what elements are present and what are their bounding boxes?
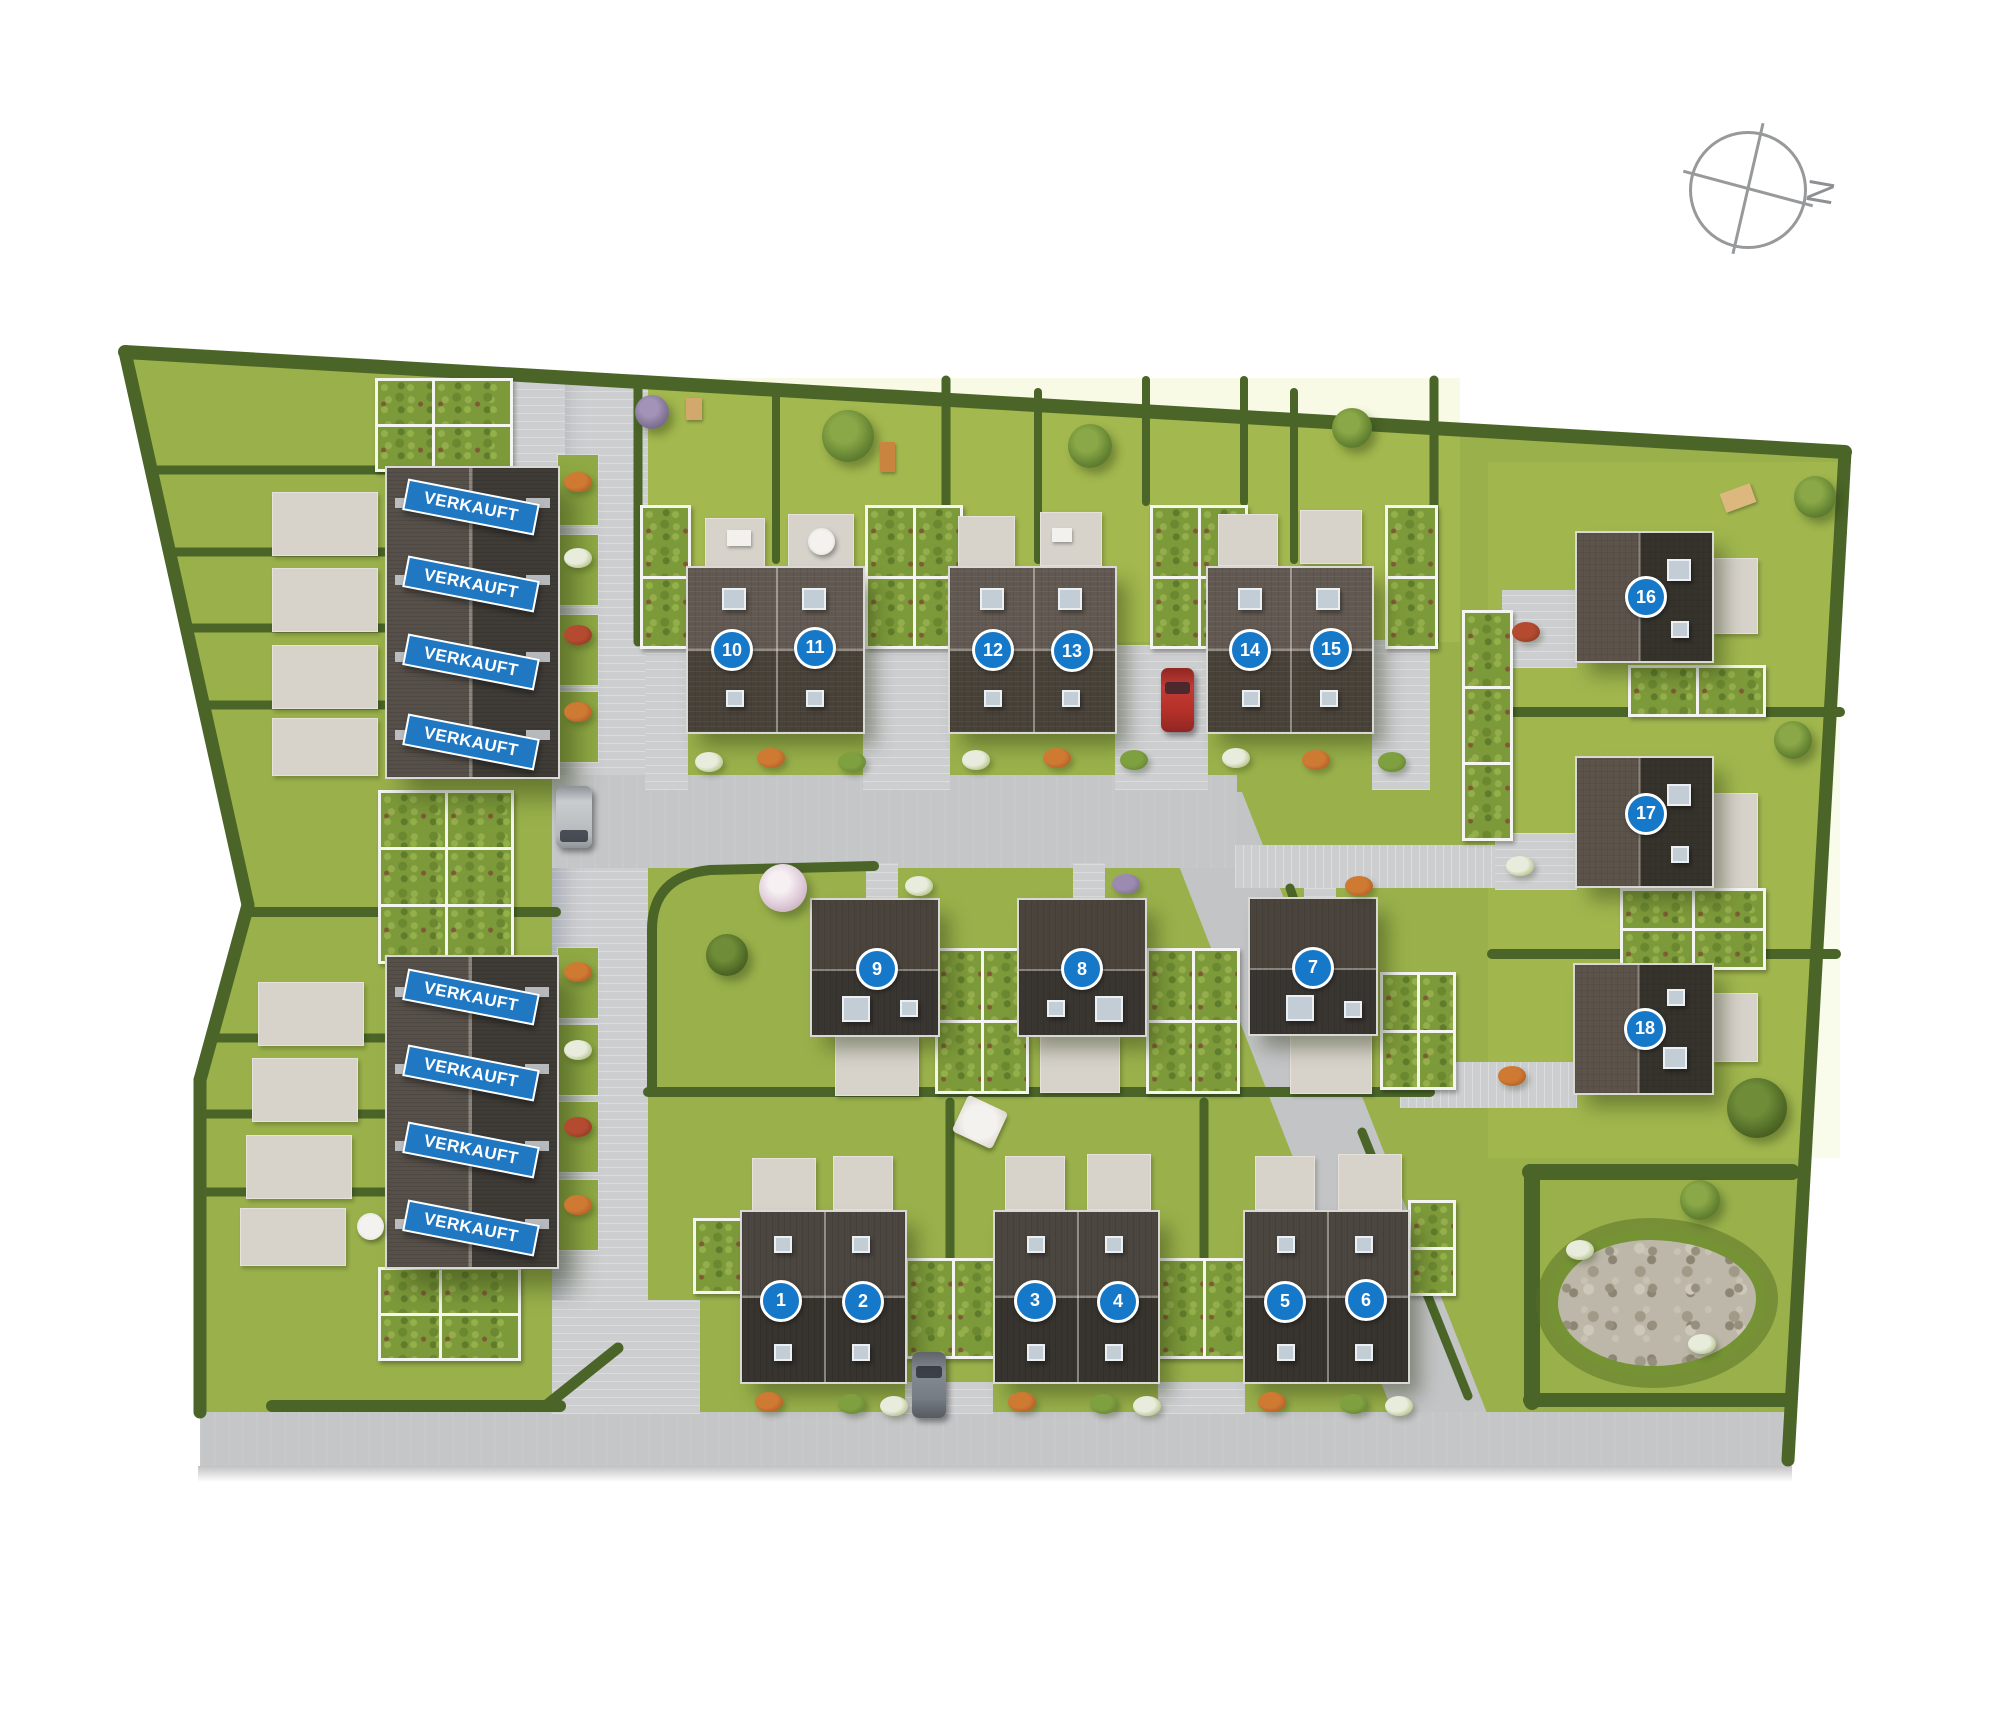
- skylight: [722, 588, 746, 610]
- hedge-corner: [548, 1348, 618, 1404]
- skylight: [1238, 588, 1262, 610]
- patio: [240, 1208, 346, 1266]
- tree: [706, 934, 748, 976]
- skylight: [852, 1236, 870, 1253]
- garden-table: [1052, 528, 1072, 542]
- plot-marker-12[interactable]: 12: [972, 629, 1014, 671]
- skylight: [1277, 1344, 1295, 1361]
- compass: N: [1689, 131, 1807, 249]
- flower-bush: [1340, 1394, 1368, 1414]
- patio: [258, 982, 364, 1046]
- garden-bed: [1380, 972, 1456, 1090]
- skylight: [1027, 1344, 1045, 1361]
- skylight: [1047, 1000, 1065, 1017]
- garden-bed: [1462, 610, 1513, 841]
- tree: [1068, 424, 1112, 468]
- flower-bush: [1506, 856, 1534, 876]
- plot-marker-1[interactable]: 1: [760, 1280, 802, 1322]
- flower-bush: [1512, 622, 1540, 642]
- garden-bed: [865, 505, 963, 649]
- patio: [1005, 1156, 1065, 1210]
- garden-bed: [378, 1267, 521, 1361]
- skylight: [1105, 1236, 1123, 1253]
- flower-bush: [838, 1394, 866, 1414]
- flower-bush: [564, 962, 592, 982]
- flower-bush: [1258, 1392, 1286, 1412]
- patio: [1338, 1154, 1402, 1210]
- patio: [1290, 1034, 1372, 1094]
- plot-marker-4[interactable]: 4: [1097, 1281, 1139, 1323]
- flower-bush: [1120, 750, 1148, 770]
- skylight: [1058, 588, 1082, 610]
- skylight: [900, 1000, 918, 1017]
- skylight: [852, 1344, 870, 1361]
- garden-bed: [378, 790, 514, 964]
- flower-bush: [1385, 1396, 1413, 1416]
- plot-marker-14[interactable]: 14: [1229, 629, 1271, 671]
- plot-marker-13[interactable]: 13: [1051, 630, 1093, 672]
- parasol: [357, 1213, 384, 1240]
- patio: [752, 1158, 816, 1212]
- plot-marker-8[interactable]: 8: [1061, 948, 1103, 990]
- skylight: [1355, 1236, 1373, 1253]
- skylight: [1344, 1001, 1362, 1018]
- patio: [1087, 1154, 1151, 1210]
- bench: [880, 442, 895, 472]
- garden-bed: [905, 1258, 1001, 1359]
- tree: [1680, 1180, 1720, 1220]
- flower-bush: [880, 1396, 908, 1416]
- skylight: [1671, 621, 1689, 638]
- plot-marker-5[interactable]: 5: [1264, 1281, 1306, 1323]
- flower-bush: [755, 1392, 783, 1412]
- skylight: [806, 690, 824, 707]
- plot-marker-6[interactable]: 6: [1345, 1279, 1387, 1321]
- red-car: [1161, 668, 1194, 732]
- patio: [958, 516, 1015, 568]
- hedge-boundary-west: [200, 905, 248, 1080]
- plot-marker-15[interactable]: 15: [1310, 628, 1352, 670]
- skylight: [1027, 1236, 1045, 1253]
- parasol: [808, 528, 835, 555]
- skylight: [1105, 1344, 1123, 1361]
- garden-bed: [1620, 888, 1766, 970]
- site-edge-shadow: [198, 1466, 1792, 1482]
- flower-bush: [564, 1040, 592, 1060]
- skylight: [1242, 690, 1260, 707]
- skylight: [1320, 690, 1338, 707]
- flower-bush: [962, 750, 990, 770]
- patio: [272, 492, 378, 556]
- tree: [1774, 721, 1812, 759]
- flower-bush: [1566, 1240, 1594, 1260]
- bench: [686, 398, 702, 420]
- plot-marker-10[interactable]: 10: [711, 629, 753, 671]
- patio: [252, 1058, 358, 1122]
- flower-bush: [564, 625, 592, 645]
- site-plan-canvas: VERKAUFTVERKAUFTVERKAUFTVERKAUFTVERKAUFT…: [0, 0, 2000, 1727]
- tree: [1727, 1078, 1787, 1138]
- plot-marker-16[interactable]: 16: [1625, 576, 1667, 618]
- tree: [822, 410, 874, 462]
- flower-bush: [695, 752, 723, 772]
- flower-bush: [1345, 876, 1373, 896]
- skylight: [774, 1236, 792, 1253]
- skylight: [1062, 690, 1080, 707]
- patio: [1300, 510, 1362, 564]
- plot-marker-9[interactable]: 9: [856, 948, 898, 990]
- patio: [272, 645, 378, 709]
- skylight: [1667, 784, 1691, 806]
- grey-van: [556, 786, 592, 848]
- patio: [272, 718, 378, 776]
- flower-bush: [838, 752, 866, 772]
- skylight: [984, 690, 1002, 707]
- skylight: [1667, 559, 1691, 581]
- garden-bed: [1408, 1200, 1456, 1296]
- patio: [1255, 1156, 1315, 1210]
- skylight: [1667, 989, 1685, 1006]
- flower-bush: [1498, 1066, 1526, 1086]
- plot-marker-7[interactable]: 7: [1292, 947, 1334, 989]
- flower-bush: [564, 472, 592, 492]
- patio: [246, 1135, 352, 1199]
- skylight: [1671, 846, 1689, 863]
- garden-bed: [1628, 665, 1766, 717]
- garden-bed: [1157, 1258, 1251, 1359]
- flower-bush: [757, 748, 785, 768]
- patio: [835, 1036, 919, 1096]
- tree: [1794, 476, 1836, 518]
- plot-marker-18[interactable]: 18: [1624, 1008, 1666, 1050]
- garden-bed: [693, 1218, 746, 1294]
- skylight: [842, 996, 870, 1022]
- flower-bush: [1302, 750, 1330, 770]
- patio: [1218, 514, 1278, 566]
- flower-bush: [564, 1195, 592, 1215]
- grey-car: [912, 1352, 946, 1418]
- flower-bush: [1222, 748, 1250, 768]
- skylight: [980, 588, 1004, 610]
- garden-bed: [640, 505, 691, 649]
- skylight: [726, 690, 744, 707]
- plot-marker-17[interactable]: 17: [1625, 793, 1667, 835]
- skylight: [1286, 995, 1314, 1021]
- flower-bush: [1133, 1396, 1161, 1416]
- patio: [272, 568, 378, 632]
- skylight: [1095, 996, 1123, 1022]
- patio: [1040, 1036, 1120, 1093]
- flower-bush: [1378, 752, 1406, 772]
- flower-bush: [905, 876, 933, 896]
- flower-bush: [1112, 874, 1140, 894]
- skylight: [1355, 1344, 1373, 1361]
- garden-bed: [1146, 948, 1240, 1094]
- skylight: [802, 588, 826, 610]
- flower-bush: [1688, 1334, 1716, 1354]
- patio: [833, 1156, 893, 1210]
- skylight: [1663, 1047, 1687, 1069]
- plot-marker-11[interactable]: 11: [794, 627, 836, 669]
- flower-bush: [1090, 1394, 1118, 1414]
- flower-bush: [564, 702, 592, 722]
- flower-bush: [564, 548, 592, 568]
- plot-marker-2[interactable]: 2: [842, 1281, 884, 1323]
- tree: [1332, 408, 1372, 448]
- plot-marker-3[interactable]: 3: [1014, 1280, 1056, 1322]
- garden-bed: [935, 948, 1029, 1094]
- skylight: [1316, 588, 1340, 610]
- flower-bush: [1043, 748, 1071, 768]
- garden-bed: [375, 378, 513, 472]
- tree: [635, 395, 669, 429]
- flower-bush: [564, 1117, 592, 1137]
- skylight: [1277, 1236, 1295, 1253]
- skylight: [774, 1344, 792, 1361]
- garden-bed: [1385, 505, 1438, 649]
- garden-table: [727, 530, 751, 546]
- flower-bush: [1008, 1392, 1036, 1412]
- blossom-tree: [759, 864, 807, 912]
